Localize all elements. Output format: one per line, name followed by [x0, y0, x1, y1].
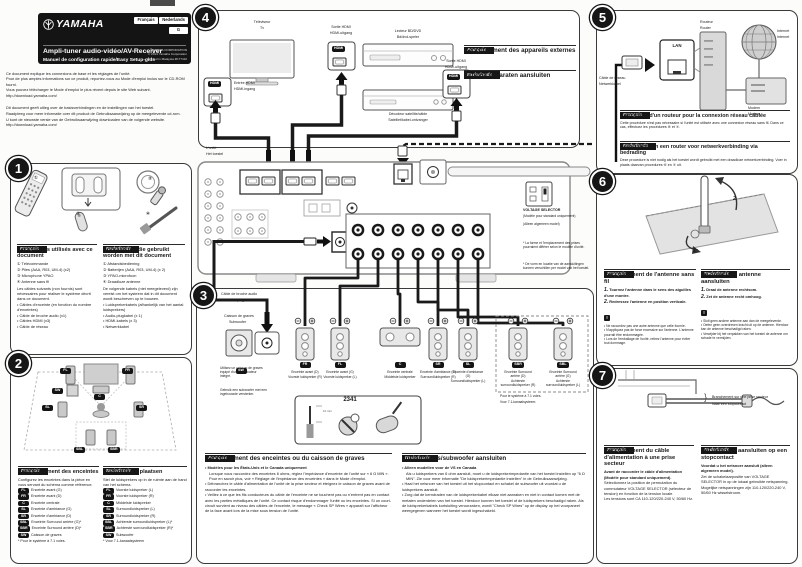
step2-number: 2: [6, 351, 31, 376]
pin-cable-label-nl: Audio-plugkabel: [227, 298, 253, 302]
speaker-badge: SBL: [18, 520, 29, 526]
speaker-label-nl: Voorste luidspreker (R): [287, 375, 323, 379]
speaker-badge: SBL: [103, 520, 114, 526]
step1-nl-title: Accessoires die gebruikt worden met dit …: [103, 247, 185, 260]
sw-note-fr: Utilisez un caisson de graves équipé d'u…: [220, 366, 268, 378]
step7-fr-body2: Les tensions sont CA 110-120/220-240 V, …: [604, 496, 694, 501]
speaker-label-group: C Enceinte centrale Middelste luidspreke…: [382, 352, 418, 379]
step2-fr-column: Français Positionnement des enceintes Co…: [18, 459, 99, 544]
speaker-row: FLVoorste luidspreker (L): [103, 488, 187, 494]
brand-name: YAMAHA: [56, 18, 104, 30]
speaker-label-group: FL Enceinte avant (G) Voorste luidspreke…: [322, 352, 358, 379]
tv-label-fr: Téléviseur: [222, 20, 302, 24]
hdmi-badge: HDMI: [447, 74, 460, 80]
step4-headers: Français Raccordement des appareils exte…: [464, 38, 576, 82]
bd-hdmi-out-nl: HDMI-uitgang: [316, 31, 366, 35]
internet-label-fr: Internet: [777, 29, 789, 33]
accessory-item: ③ YPAO-microfoon: [103, 273, 185, 278]
nl-language-header: Nederlands: [701, 262, 790, 270]
accessory-item: ③ Microphone YPAO: [17, 273, 97, 278]
step7-nl-body1: Zet de schakelaarpositie van VOLTAGE SEL…: [701, 474, 790, 484]
step6-fr-bullet: • Lors de l'emballage de l'unité, retire…: [604, 337, 696, 345]
speaker-badge: FL: [18, 488, 29, 494]
francais-button[interactable]: Français: [134, 17, 157, 24]
speaker-name: Middelste luidspreker: [116, 501, 151, 505]
intro-nl-1: Dit document geeft uitleg over de basisv…: [6, 105, 192, 110]
room-badge-sw: SW: [52, 388, 63, 394]
step6-nl-step1: 1. Draai de antenne rechtsom.: [701, 287, 790, 294]
intro-nl-url: http://download.yamaha.com/: [6, 122, 192, 127]
speaker-badge: FL: [335, 362, 346, 368]
room-badge-fl: FL: [60, 368, 71, 374]
step7-nl-title: Het netsnoer aansluiten op een stopconta…: [701, 448, 790, 461]
speaker-badge: SR: [103, 514, 114, 520]
step3-fr-bullet-head: • Modèles pour les États-Unis et le Cana…: [205, 465, 392, 470]
language-switcher: Français Nederlands: [134, 17, 188, 24]
caution-icon: !: [604, 315, 610, 321]
speaker-row: SRSurroundluidspreker (R): [103, 514, 187, 520]
step1-number: 1: [6, 156, 31, 181]
unit-label-fr: L'unité: [206, 146, 216, 150]
step7-number: 7: [590, 363, 615, 388]
step-text: Zet de antenne recht omhoog.: [706, 294, 762, 299]
speaker-label-group: SBL Enceinte Surround arrière (G) Achter…: [545, 352, 581, 387]
step4-nl-title: Externe apparaten aansluiten: [464, 73, 576, 80]
step2-nl-title: Luidsprekers plaatsen: [103, 469, 187, 475]
speaker-label-fr: Enceinte d'ambiance (G): [450, 370, 486, 378]
speaker-label-fr: Enceinte avant (D): [287, 370, 323, 374]
imprint-copyright: © 2014 Yamaha Corporation: [148, 52, 187, 56]
step3-fr-bullet: • Veillez à ce que les fils conducteurs …: [205, 492, 392, 513]
speaker-name: Enceinte centrale: [31, 501, 60, 505]
step7-fr-body1: Sélectionnez la position de permutation …: [604, 480, 694, 495]
speaker-label-group: SL Enceinte d'ambiance (G) Surroundluids…: [450, 352, 486, 383]
speaker-name: Enceinte d'ambiance (D): [31, 514, 71, 518]
step-number-1: 1.: [604, 287, 608, 293]
speaker-name: Enceinte d'ambiance (G): [31, 507, 71, 511]
step6-number: 6: [590, 169, 615, 194]
accessory-item: ② Piles (AAA, R03, UM-4) (x2): [17, 267, 97, 272]
speaker-label-group: SBR Enceinte Surround arrière (D) Achter…: [500, 352, 536, 387]
accessory-item: ④ Draadloze antenne: [103, 279, 185, 284]
cable-bullet: • Câble de broche audio (x1): [17, 313, 97, 318]
speaker-row: SBRAchterste surroundluidspreker (R)*: [103, 526, 187, 532]
step7-nl-column: Nederlands Het netsnoer aansluiten op ee…: [701, 438, 790, 496]
step7-fr-bold: Avant de raccorder le câble d'alimentati…: [604, 469, 694, 479]
step2-fr-title: Positionnement des enceintes: [18, 469, 99, 475]
speaker-row: FREnceinte avant (D): [18, 494, 99, 500]
step7-nl-bold: Voordat u het netsnoer aansluit (alleen …: [701, 463, 790, 473]
fr-language-header: Français: [604, 262, 696, 270]
step3-nl-title: Luidsprekers/subwoofer aansluiten: [402, 456, 586, 463]
nl-language-header: Nederlands: [103, 459, 187, 467]
fr-language-header: Français: [18, 459, 99, 467]
speaker-badge: SW: [18, 533, 29, 539]
speaker-label-fr: Enceinte avant (G): [322, 370, 358, 374]
step2-fr-intro: Configurez les enceintes dans la pièce e…: [18, 477, 99, 487]
step4-fr-title: Raccordement des appareils externes: [464, 48, 576, 55]
speaker-name: Enceinte avant (D): [31, 494, 62, 498]
accessory-mark-2: ②: [148, 176, 152, 182]
doc-subtitle: Manuel de configuration rapide/Easy Setu…: [43, 58, 155, 63]
speaker-row: SWCaisson de graves: [18, 533, 99, 539]
masthead-divider: [43, 45, 186, 46]
speaker-badge: SL: [103, 507, 114, 513]
step3-fr-bullet-body: Lorsque vous raccordez des enceintes 6 o…: [205, 471, 392, 481]
speaker-badge: FR: [300, 362, 311, 368]
accessory-item: ④ Antenne sans fil: [17, 279, 97, 284]
speaker-name: Achterste surroundluidspreker (L)*: [116, 520, 172, 524]
step1-fr-column: Français Accessoires utilisés avec ce do…: [17, 237, 97, 330]
router-label-fr: Routeur: [700, 20, 713, 24]
step3-nl-section: Nederlands Luidsprekers/subwoofer aanslu…: [402, 446, 586, 514]
intro-nl-3: U kunt de nieuwste versie van de Gebruik…: [6, 117, 192, 122]
accessory-mark-1: ①: [34, 175, 38, 181]
internet-label-nl: Internet: [777, 35, 789, 39]
step7-nl-body2: Mogelijke netspanningen zijn 110-120/220…: [701, 485, 790, 495]
step6-fr-bullet: • N'appliquez pas de force excessive sur…: [604, 328, 696, 336]
nl-language-header: Nederlands: [402, 446, 586, 454]
step4-number: 4: [193, 5, 218, 30]
step2-nl-footnote: * Voor 7.1-kanaalsysteem: [103, 539, 187, 544]
speaker-label-group: FR Enceinte avant (D) Voorste luidspreke…: [287, 352, 323, 379]
step5-fr-body: Cette procédure n'est pas nécessaire si …: [620, 121, 790, 130]
voltage-selector-nl: (Alleen algemeen model): [523, 222, 595, 226]
cable-bullet: • Audio-plugkabel (x 1): [103, 313, 185, 318]
step3-fr-section: Français Raccordement des enceintes ou d…: [205, 446, 392, 514]
step6-fr-step2: 2. Redressez l'antenne en position verti…: [604, 299, 696, 306]
speaker-row: CEnceinte centrale: [18, 501, 99, 507]
step6-nl-bullet: • Verwijder bij het verpakken van het to…: [701, 332, 790, 340]
router-label-nl: Router: [700, 26, 711, 30]
step5-text: Français Connexion d'un routeur pour la …: [620, 103, 790, 168]
sat-label-nl: Satelliet/kabel-ontvanger: [363, 118, 453, 122]
network-cable-label-fr: Câble de réseau: [599, 76, 625, 80]
accessory-mark-4: ④: [146, 211, 150, 217]
step3-number: 3: [191, 283, 216, 308]
cable-bullet: • HDMI-kabels (x 3): [103, 318, 185, 323]
speaker-label-nl: Achterste surroundluidspreker (L): [545, 379, 581, 387]
speaker-row: SBREnceinte Surround arrière (D)*: [18, 526, 99, 532]
fr-language-header: Français: [17, 237, 97, 245]
step5-nl-title: Aansluiten van een router voor netwerkve…: [620, 144, 770, 156]
step6-fr-step1: 1. Tournez l'antenne dans le sens des ai…: [604, 287, 696, 299]
step1-nl-column: Nederlands Accessoires die gebruikt word…: [103, 237, 185, 330]
intro-nl-2: Raadpleeg voor meer informatie over dit …: [6, 111, 192, 116]
step6-nl-bullet: • Oefen geen overdreven kracht uit op de…: [701, 323, 790, 331]
step5-fr-title: Connexion d'un routeur pour la connexion…: [620, 113, 790, 119]
accessory-item: ① Afstandsbediening: [103, 261, 185, 266]
accessory-item: ① Télécommande: [17, 261, 97, 266]
inset-number: 2341: [320, 397, 380, 403]
nl-language-header: Nederlands: [464, 63, 576, 71]
bd-hdmi-out-fr: Sortie HDMI: [316, 25, 366, 29]
accessory-mark-3: ③: [76, 211, 80, 217]
speaker-name: Caisson de graves: [31, 533, 62, 537]
speaker-label-nl: Achterste surroundluidspreker (R): [500, 379, 536, 387]
speaker-badge: SW: [103, 533, 114, 539]
room-badge-c: C: [94, 394, 105, 400]
intro-fr-url: http://download.yamaha.com/: [6, 93, 192, 98]
bd-player-label-nl: Bd/dvd-speler: [363, 35, 453, 39]
inset-strip-length: 10 mm: [323, 409, 332, 413]
speaker-name: Voorste luidspreker (L): [116, 488, 153, 492]
hdmi-badge: HDMI: [208, 81, 221, 87]
unit-footnote-nl: * De vorm en locatie van de aansluitinge…: [523, 262, 593, 270]
speaker-badge: SL: [18, 507, 29, 513]
nl-language-header: Nederlands: [701, 438, 790, 446]
speaker-name: Subwoofer: [116, 533, 134, 537]
antenna-step1-mark: 1: [693, 248, 696, 254]
step2-fr-footnote: * Pour le système à 7.1 voies.: [18, 539, 99, 544]
nl-language-header: Nederlands: [103, 237, 185, 245]
cable-bullet: • Netwerkkabel: [103, 324, 185, 329]
step7-fr-column: Français Raccordement du câble d'aliment…: [604, 438, 694, 502]
speaker-badge: FR: [18, 494, 29, 500]
network-cable-label-nl: Netwerkkabel: [599, 82, 621, 86]
speaker-label-fr: Enceinte centrale: [382, 370, 418, 374]
outlet-label-fr: Branchement sur une prise secteur: [712, 395, 794, 399]
speaker-name: Enceinte Surround arrière (G)*: [31, 520, 81, 524]
speaker-badge: FR: [103, 494, 114, 500]
cable-bullet: • Câbles HDMI (x3): [17, 318, 97, 323]
cable-bullet: • Câble de réseau: [17, 324, 97, 329]
speaker-badge: C: [18, 501, 29, 507]
tv-hdmi-in-nl: HDMI-ingang: [234, 87, 255, 91]
speaker-badge: SR: [433, 362, 444, 368]
room-badge-fr: FR: [122, 368, 133, 374]
step6-nl-column: Nederlands De draadloze antenne aansluit…: [701, 262, 790, 340]
step3-nl-bullet-body: Als u luidsprekers van 6 ohm aansluit, m…: [402, 471, 586, 481]
step2-nl-column: Nederlands Luidsprekers plaatsen Stel de…: [103, 459, 187, 544]
step-text: Redressez l'antenne en position vertical…: [609, 299, 686, 304]
masthead: YAMAHA Français Nederlands G Ampli-tuner…: [38, 13, 191, 64]
pin-cable-label-fr: Câble de broche audio: [221, 292, 257, 296]
speaker-name: Surroundluidspreker (R): [116, 514, 155, 518]
step-number-1: 1.: [701, 287, 705, 293]
fr-language-header: Français: [205, 446, 392, 454]
step5-number: 5: [590, 5, 615, 30]
step-number-2: 2.: [701, 294, 705, 300]
speaker-row: SBLEnceinte Surround arrière (G)*: [18, 520, 99, 526]
voltage-selector-label: VOLTAGE SELECTOR: [523, 208, 595, 212]
step3-fr-title: Raccordement des enceintes ou du caisson…: [205, 456, 392, 463]
unit-footnote-fr: * La forme et l'emplacement des prises p…: [523, 241, 593, 249]
brace-glyph: }: [704, 392, 707, 402]
step6-nl-step2: 2. Zet de antenne recht omhoog.: [701, 294, 790, 301]
speaker-badge: FL: [103, 488, 114, 494]
speaker-name: Voorste luidspreker (R): [116, 494, 154, 498]
intro-fr-3: Vous pouvez télécharger le Mode d'emploi…: [6, 87, 192, 92]
model-g-button[interactable]: G: [169, 27, 188, 34]
room-layout-illustration: [10, 358, 190, 455]
intro-fr-2: Pour de plus amples informations sur ce …: [6, 76, 192, 86]
speaker-label-fr: Enceinte Surround arrière (D): [500, 370, 536, 378]
yamaha-logo-icon: [43, 19, 54, 30]
doc-title: Ampli-tuner audio-vidéo/AV-Receiver: [43, 48, 162, 55]
tv-label-nl: Tv: [222, 26, 302, 30]
unit-label-nl: Het toestel: [206, 152, 223, 156]
step5-nl-body: Deze procedure is niet nodig als het toe…: [620, 158, 790, 167]
nl-language-header: Nederlands: [620, 134, 790, 142]
speaker-badge: SBR: [18, 526, 30, 532]
step3-nl-bullet: • Zorg dat de kerndraden van de luidspre…: [402, 492, 586, 513]
speaker-row: SBLAchterste surroundluidspreker (L)*: [103, 520, 187, 526]
subwoofer-title-fr: Caisson de graves: [224, 314, 254, 318]
intro-block: Ce document explique les connexions de b…: [6, 70, 192, 128]
tv-hdmi-in-fr: Entrée HDMI: [234, 81, 255, 85]
accessory-item: ② Batterijen (AAA, R03, UM-4) (x 2): [103, 267, 185, 272]
speaker-row: FLEnceinte avant (G): [18, 488, 99, 494]
speaker-row: SREnceinte d'ambiance (D): [18, 514, 99, 520]
easy-setup-guide-page: YAMAHA Français Nederlands G Ampli-tuner…: [0, 0, 802, 567]
speaker-badge: C: [103, 501, 114, 507]
voltage-selector-fr: (Modèle pour standard uniquement): [523, 214, 595, 218]
speaker-row: SLSurroundluidspreker (L): [103, 507, 187, 513]
step6-fr-column: Français Raccordement de l'antenne sans …: [604, 262, 696, 345]
antenna-illustration: [596, 174, 796, 260]
speaker-name: Enceinte avant (G): [31, 488, 62, 492]
step1-fr-note: Les câbles suivants (non fournis) sont n…: [17, 286, 97, 301]
fr-language-header: Français: [604, 438, 694, 446]
caution-icon: !: [701, 310, 707, 316]
note-71-fr: Pour le système à 7.1 voies.: [500, 394, 586, 398]
step7-fr-title: Raccordement du câble d'alimentation à u…: [604, 448, 694, 468]
brand-lockup: YAMAHA: [43, 18, 104, 30]
step3-fr-bullet: • Débranchez le câble d'alimentation de …: [205, 481, 392, 491]
step3-nl-bullet-head: • Alleen modellen voor de VS en Canada: [402, 465, 586, 470]
step3-nl-bullet: • Haal het netsnoer van het toestel uit …: [402, 481, 586, 491]
speaker-badge: SBR: [103, 526, 115, 532]
speaker-label-fr: Enceinte Surround arrière (G): [545, 370, 581, 378]
cable-bullet: • Câbles d'enceinte (en fonction du nomb…: [17, 302, 97, 312]
bd-player-label-fr: Lecteur BD/DVD: [363, 29, 453, 33]
speaker-row: FRVoorste luidspreker (R): [103, 494, 187, 500]
step-text: Draai de antenne rechtsom.: [706, 287, 757, 292]
note-71-nl: Voor 7.1-kanaalsysteem: [500, 400, 586, 404]
speaker-label-nl: Surroundluidspreker (L): [450, 379, 486, 383]
step-number-2: 2.: [604, 299, 608, 305]
step-text: Tournez l'antenne dans le sens des aigui…: [604, 287, 691, 299]
room-badge-sbr: SBR: [108, 447, 120, 453]
speaker-badge: C: [395, 362, 406, 368]
speaker-name: Achterste surroundluidspreker (R)*: [117, 526, 174, 530]
speaker-row: CMiddelste luidspreker: [103, 501, 187, 507]
speaker-badge: SR: [18, 514, 29, 520]
speaker-badge: SBL: [557, 362, 568, 368]
lan-label: LAN: [660, 43, 694, 48]
speaker-badge: SBR: [512, 362, 524, 368]
step6-fr-title: Raccordement de l'antenne sans fil: [604, 272, 696, 285]
intro-fr-1: Ce document explique les connexions de b…: [6, 71, 192, 76]
hdmi-badge: HDMI: [332, 46, 345, 52]
room-badge-sl: SL: [42, 405, 53, 411]
speaker-name: Enceinte Surround arrière (D)*: [32, 526, 82, 530]
speaker-row: SLEnceinte d'ambiance (G): [18, 507, 99, 513]
fr-language-header: Français: [620, 103, 790, 111]
speaker-row: SWSubwoofer: [103, 533, 187, 539]
speaker-name: Surroundluidspreker (L): [116, 507, 155, 511]
speaker-label-nl: Voorste luidspreker (L): [322, 375, 358, 379]
speaker-label-nl: Middelste luidspreker: [382, 375, 418, 379]
imprint-printed: Printed in Malaysia ZK77110: [148, 57, 187, 61]
binding-mark: [150, 0, 175, 6]
step6-nl-title: De draadloze antenne aansluiten: [701, 272, 790, 285]
nederlands-button[interactable]: Nederlands: [159, 17, 188, 24]
outlet-label-nl: Naar een stopcontact: [712, 402, 794, 406]
antenna-step2-mark: 2: [733, 196, 736, 202]
room-badge-sr: SR: [136, 405, 147, 411]
power-cord-illustration: [596, 368, 796, 434]
step1-nl-note: De volgende kabels (niet meegeleverd) zi…: [103, 286, 185, 301]
sat-label-fr: Décodeur satellite/câble: [363, 112, 453, 116]
step2-nl-intro: Stel de luidsprekers op in de ruimte aan…: [103, 477, 187, 487]
step1-fr-title: Accessoires utilisés avec ce document: [17, 247, 97, 260]
cable-bullet: • Luidsprekerkabels (afhankelijk van het…: [103, 302, 185, 312]
speaker-badge: SL: [463, 362, 474, 368]
subwoofer-title-nl: Subwoofer: [229, 320, 246, 324]
sw-note-nl: Gebruik een subwoofer met een ingebouwde…: [220, 388, 268, 396]
fr-language-header: Français: [464, 38, 576, 46]
imprint: YAMAHA CORPORATION © 2014 Yamaha Corpora…: [148, 48, 187, 61]
room-badge-sbl: SBL: [74, 447, 85, 453]
